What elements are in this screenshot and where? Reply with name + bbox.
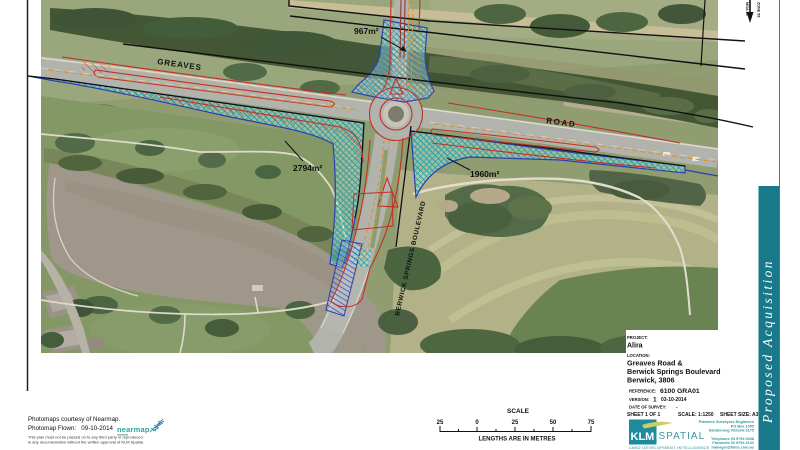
svg-text:LOCATION:: LOCATION: <box>627 353 650 358</box>
svg-text:SPATIAL: SPATIAL <box>659 431 706 442</box>
svg-text:SHEET 1 OF 1: SHEET 1 OF 1 <box>627 412 661 418</box>
svg-text:nearmap: nearmap <box>117 425 150 434</box>
svg-text:SCALE: SCALE <box>507 408 530 415</box>
svg-text:DATE OF SURVEY:: DATE OF SURVEY: <box>629 405 666 410</box>
svg-text:Dandenong Victoria 3175: Dandenong Victoria 3175 <box>709 429 754 433</box>
svg-text:in any documentation without t: in any documentation without the written… <box>28 440 144 445</box>
svg-text:SHEET SIZE: A3: SHEET SIZE: A3 <box>720 412 759 418</box>
svg-text:1: 1 <box>653 397 657 404</box>
svg-text:Berwick, 3806: Berwick, 3806 <box>627 376 675 385</box>
svg-text:Photomap Flown: 09-10-2014: Photomap Flown: 09-10-2014 <box>28 425 114 432</box>
svg-text:REFERENCE:: REFERENCE: <box>629 389 656 394</box>
svg-text:Proposed Acquisition: Proposed Acquisition <box>760 259 775 424</box>
svg-text:6100 GRA01: 6100 GRA01 <box>660 388 700 395</box>
svg-text:Planners Surveyors Engineers: Planners Surveyors Engineers <box>699 420 754 424</box>
svg-text:manager@klms.com.au: manager@klms.com.au <box>711 446 754 450</box>
svg-text:25: 25 <box>437 420 444 426</box>
svg-text:2794m²: 2794m² <box>293 163 322 173</box>
svg-text:75: 75 <box>588 420 595 426</box>
svg-text:KLM: KLM <box>631 431 655 443</box>
svg-text:03-10-2014: 03-10-2014 <box>661 397 687 403</box>
svg-text:MGA 94: MGA 94 <box>745 2 749 17</box>
svg-text:ZONE 55: ZONE 55 <box>757 2 761 17</box>
svg-text:PROJECT:: PROJECT: <box>627 335 648 340</box>
svg-text:VERSION:: VERSION: <box>629 397 649 402</box>
svg-text:25: 25 <box>512 420 519 426</box>
svg-text:1960m²: 1960m² <box>470 169 499 179</box>
svg-text:SCALE: 1:1250: SCALE: 1:1250 <box>678 412 714 418</box>
svg-text:Photomaps courtesy of Nearmap.: Photomaps courtesy of Nearmap. <box>28 416 120 423</box>
svg-text:LENGTHS ARE IN METRES: LENGTHS ARE IN METRES <box>478 437 555 443</box>
svg-text:967m²: 967m² <box>354 26 379 36</box>
svg-text:50: 50 <box>550 420 557 426</box>
svg-text:LAND DEVELOPMENT INTELLIGENCE: LAND DEVELOPMENT INTELLIGENCE <box>629 445 710 450</box>
svg-text:Alira: Alira <box>627 343 643 350</box>
